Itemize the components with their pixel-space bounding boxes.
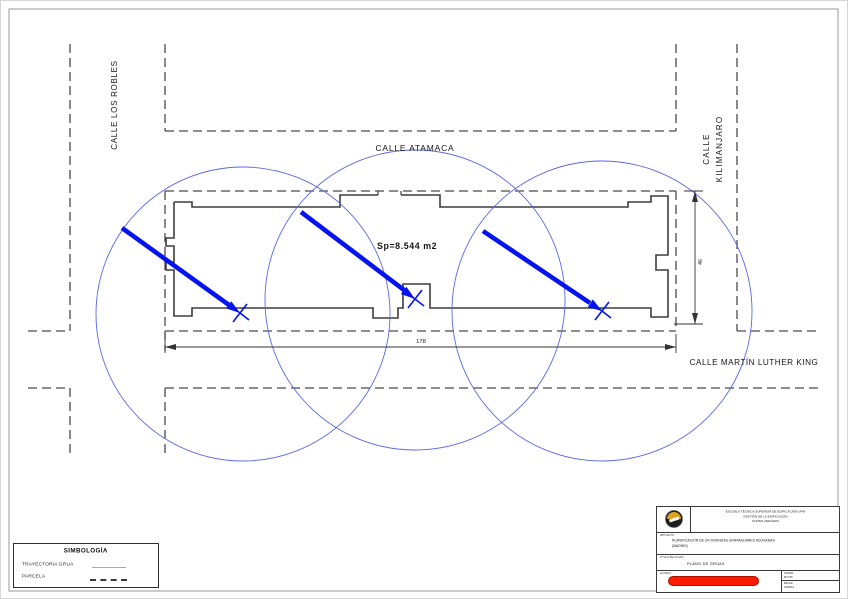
area-label: Sp=8.544 m2 [377, 241, 437, 251]
drawing-sheet: 178 46 CALLE ATAMACA CALLE LOS ROBLES CA… [0, 0, 848, 599]
group-label: GRUPO: [784, 572, 794, 576]
date-label: FECHA: [784, 582, 794, 586]
title-block-divider [781, 570, 782, 592]
crane-trajectory-symbol [92, 567, 126, 568]
street-label-atamaca: CALLE ATAMACA [375, 143, 454, 153]
student-name-redaction [668, 576, 759, 586]
student-label: ALUMNO: [660, 572, 671, 575]
date-value: 14/03/14 [784, 585, 794, 589]
school-line3: CURSO 2022/2023 [691, 519, 840, 524]
street-label-martin-luther-king: CALLE MARTÍN LUTHER KING [690, 357, 819, 367]
street-label-kilimanjaro-word1: CALLE [702, 133, 711, 164]
group-value: M3 T06 [784, 575, 794, 579]
title-block-divider [781, 580, 839, 581]
dimension-width-label: 178 [416, 339, 426, 345]
legend-item-trajectory-label: TRAYECTORIA GRUA [22, 562, 73, 567]
dimension-height-label: 46 [698, 259, 704, 265]
legend-item-parcel-label: PARCELA [22, 574, 45, 579]
street-label-kilimanjaro-word2: KILIMANJARO [715, 116, 724, 183]
project-line2: (MADRID) [672, 544, 775, 549]
plan-title-label: TÍTULO DEL PLANO: [660, 556, 684, 559]
title-block: ESCUELA TÉCNICA SUPERIOR DE EDIFICACIÓN … [656, 506, 840, 593]
project-name: PLANIFICACIÓN DE 34 VIVIENDAS UNIFAMILIA… [672, 539, 775, 549]
parcel-dash-symbol [90, 579, 127, 581]
legend-title: SIMBOLOGÍA [14, 547, 158, 554]
plan-title: PLANO DE GRÚAS [687, 562, 725, 566]
date-cell: FECHA: 14/03/14 [784, 582, 794, 589]
street-label-los-robles: CALLE LOS ROBLES [110, 60, 119, 149]
upm-logo [662, 508, 686, 531]
school-header: ESCUELA TÉCNICA SUPERIOR DE EDIFICACIÓN … [691, 510, 840, 524]
title-block-divider [657, 554, 839, 555]
legend-box: SIMBOLOGÍA TRAYECTORIA GRUA PARCELA [13, 543, 159, 588]
group-cell: GRUPO: M3 T06 [784, 572, 794, 579]
title-block-divider [657, 532, 839, 533]
title-block-divider [657, 570, 839, 571]
project-label: PROYECTO: [660, 534, 675, 537]
